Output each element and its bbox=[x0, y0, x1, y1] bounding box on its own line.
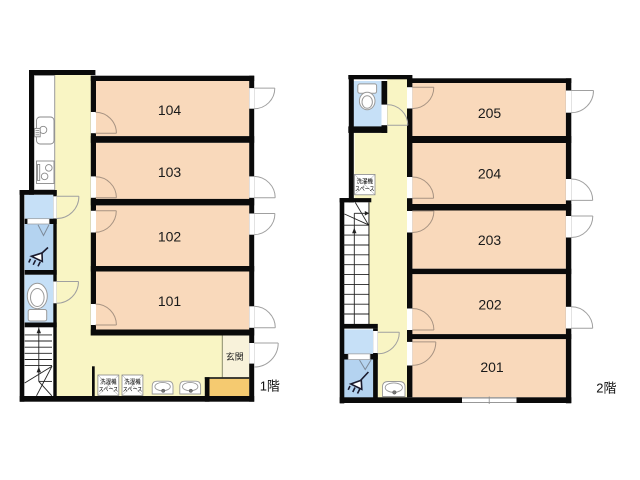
svg-text:洗濯機: 洗濯機 bbox=[100, 378, 117, 386]
svg-text:スペース: スペース bbox=[123, 386, 143, 393]
svg-text:1階: 1階 bbox=[260, 379, 280, 394]
svg-text:202: 202 bbox=[478, 297, 502, 313]
svg-text:玄関: 玄関 bbox=[226, 351, 244, 362]
svg-text:洗濯機: 洗濯機 bbox=[124, 378, 141, 386]
svg-text:スペース: スペース bbox=[99, 386, 119, 393]
svg-text:102: 102 bbox=[158, 229, 182, 245]
svg-text:201: 201 bbox=[480, 359, 504, 375]
svg-text:204: 204 bbox=[478, 166, 502, 182]
svg-text:205: 205 bbox=[478, 105, 502, 121]
svg-text:203: 203 bbox=[478, 232, 502, 248]
svg-text:103: 103 bbox=[158, 164, 182, 180]
svg-text:スペース: スペース bbox=[355, 186, 375, 193]
svg-text:洗濯機: 洗濯機 bbox=[357, 178, 374, 186]
svg-text:104: 104 bbox=[158, 102, 182, 118]
svg-text:101: 101 bbox=[158, 293, 182, 309]
svg-text:2階: 2階 bbox=[596, 381, 616, 396]
